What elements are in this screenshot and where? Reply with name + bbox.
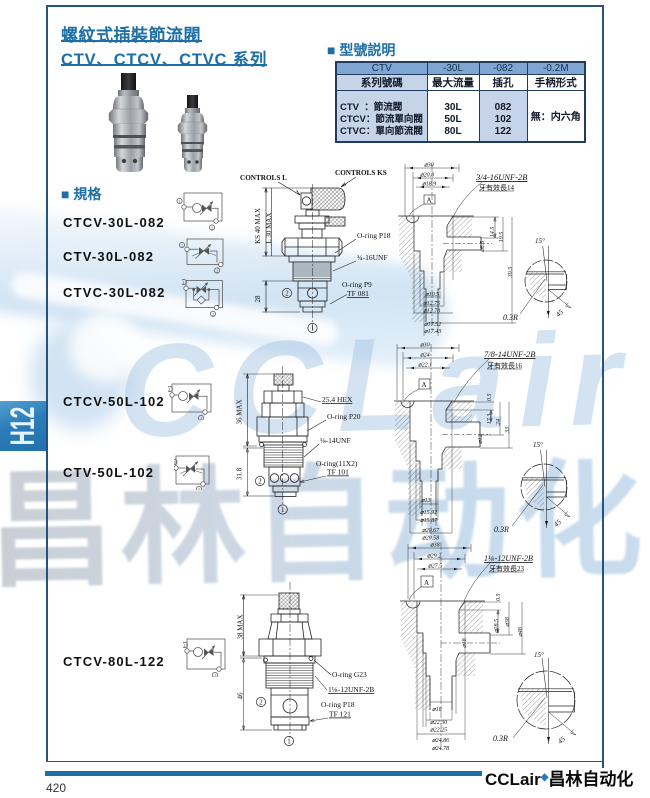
- svg-text:A: A: [424, 579, 429, 587]
- svg-text:2: 2: [211, 226, 213, 231]
- svg-text:1⅛ -12UNF-2B: 1⅛ -12UNF-2B: [484, 554, 533, 563]
- svg-text:A: A: [422, 381, 427, 389]
- svg-text:牙有效長16: 牙有效長16: [487, 361, 522, 370]
- svg-text:17.3: 17.3: [487, 414, 493, 425]
- svg-text:O-ring P20: O-ring P20: [327, 412, 361, 421]
- svg-text:2: 2: [200, 416, 202, 420]
- svg-text:46: 46: [237, 692, 245, 700]
- svg-text:⌀22.25: ⌀22.25: [430, 728, 447, 734]
- svg-text:L 30 MAX: L 30 MAX: [265, 213, 273, 244]
- svg-text:⌀28.5: ⌀28.5: [494, 619, 500, 633]
- svg-text:CONTROLS KS: CONTROLS KS: [335, 169, 387, 177]
- svg-text:A: A: [427, 197, 432, 205]
- svg-text:¾-16UNF: ¾-16UNF: [357, 253, 388, 262]
- svg-text:1: 1: [281, 506, 285, 514]
- svg-text:1⅛ -12UNF-2B: 1⅛ -12UNF-2B: [328, 685, 374, 694]
- svg-text:KS 40 MAX: KS 40 MAX: [254, 208, 262, 244]
- svg-text:⌀8.5: ⌀8.5: [480, 241, 486, 252]
- svg-text:⌀17.52: ⌀17.52: [424, 322, 441, 328]
- svg-text:45: 45: [552, 518, 563, 529]
- svg-text:45: 45: [556, 735, 567, 746]
- svg-text:⌀20.67: ⌀20.67: [422, 528, 440, 534]
- svg-text:⌀18.9: ⌀18.9: [422, 182, 436, 188]
- svg-text:⌀12: ⌀12: [478, 434, 484, 444]
- svg-text:24: 24: [495, 419, 502, 425]
- svg-text:⌀18: ⌀18: [432, 707, 442, 713]
- svg-text:⌀48: ⌀48: [517, 627, 524, 637]
- svg-text:7/8-14UNF-2B: 7/8-14UNF-2B: [484, 349, 535, 359]
- svg-text:⌀38: ⌀38: [505, 617, 511, 627]
- svg-text:15°: 15°: [535, 237, 545, 245]
- svg-text:⅛-14UNF: ⅛-14UNF: [320, 436, 351, 445]
- svg-text:1: 1: [183, 280, 185, 285]
- svg-text:O-ring G23: O-ring G23: [332, 670, 367, 679]
- svg-text:25.4 HEX: 25.4 HEX: [322, 395, 353, 404]
- svg-text:0.3R: 0.3R: [494, 525, 509, 534]
- svg-text:TF 081: TF 081: [347, 289, 369, 298]
- svg-text:O-ring P9: O-ring P9: [342, 280, 372, 289]
- svg-text:2: 2: [259, 699, 263, 707]
- svg-text:1: 1: [181, 243, 183, 248]
- svg-text:1: 1: [311, 325, 315, 333]
- svg-text:⌀27.5: ⌀27.5: [428, 564, 442, 570]
- svg-text:36 MAX: 36 MAX: [236, 399, 244, 424]
- svg-text:⌀22.1: ⌀22.1: [418, 363, 432, 369]
- svg-text:1: 1: [178, 199, 180, 204]
- svg-text:⌀24.86: ⌀24.86: [432, 737, 449, 744]
- svg-text:2: 2: [216, 269, 218, 274]
- svg-text:牙有效長14: 牙有效長14: [479, 183, 514, 192]
- svg-text:⌀38: ⌀38: [430, 543, 440, 549]
- svg-text:牙有效長23: 牙有效長23: [489, 564, 524, 573]
- svg-text:38 MAX: 38 MAX: [237, 614, 245, 639]
- svg-text:0.5: 0.5: [496, 594, 502, 602]
- svg-text:TF 101: TF 101: [327, 468, 349, 477]
- svg-text:33: 33: [505, 427, 511, 434]
- svg-text:1: 1: [174, 460, 176, 465]
- svg-text:⌀24: ⌀24: [420, 352, 430, 359]
- svg-text:⌀17.43: ⌀17.43: [424, 328, 441, 335]
- svg-text:⌀13: ⌀13: [421, 498, 431, 504]
- svg-text:⌀24.78: ⌀24.78: [432, 745, 449, 752]
- svg-text:28: 28: [254, 295, 262, 303]
- svg-text:2: 2: [285, 290, 289, 298]
- svg-text:2: 2: [258, 478, 262, 486]
- svg-text:2: 2: [198, 487, 200, 490]
- svg-text:15°: 15°: [533, 441, 543, 449]
- svg-text:⌀29.2: ⌀29.2: [427, 554, 441, 560]
- svg-text:0.5: 0.5: [487, 394, 493, 402]
- svg-text:0.3R: 0.3R: [503, 313, 518, 322]
- svg-text:1: 1: [287, 738, 291, 746]
- svg-text:⌀22.30: ⌀22.30: [430, 720, 447, 726]
- svg-text:⌀12.75: ⌀12.75: [423, 301, 440, 307]
- svg-text:15°: 15°: [534, 651, 544, 659]
- svg-text:⌀12.70: ⌀12.70: [423, 309, 440, 315]
- svg-text:3/4-16UNF-2B: 3/4-16UNF-2B: [475, 172, 527, 182]
- svg-text:⌀10.5: ⌀10.5: [425, 292, 439, 298]
- svg-text:0.3R: 0.3R: [493, 734, 508, 743]
- svg-text:1: 1: [184, 643, 186, 648]
- svg-text:O-ring P18: O-ring P18: [321, 700, 355, 709]
- svg-text:14.5: 14.5: [489, 227, 496, 238]
- svg-text:TF 121: TF 121: [329, 710, 351, 719]
- svg-text:45: 45: [554, 308, 565, 319]
- svg-text:⌀15.87: ⌀15.87: [420, 518, 438, 524]
- svg-text:O-ring P18: O-ring P18: [357, 231, 391, 240]
- svg-text:31.8: 31.8: [236, 467, 244, 480]
- svg-text:2: 2: [212, 312, 214, 317]
- svg-text:CONTROLS L: CONTROLS L: [240, 174, 287, 182]
- svg-text:1: 1: [169, 387, 171, 392]
- svg-text:2: 2: [214, 673, 216, 677]
- svg-text:⌀15.92: ⌀15.92: [420, 510, 437, 516]
- svg-text:⌀30: ⌀30: [420, 343, 430, 349]
